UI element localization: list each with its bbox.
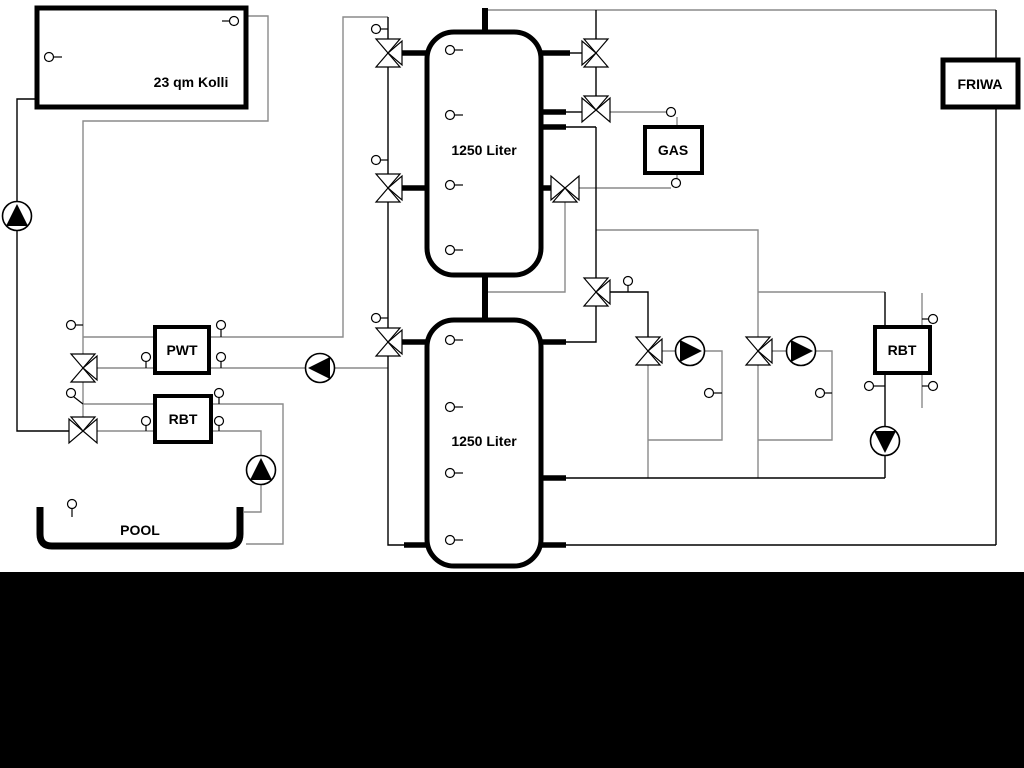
friwa-label: FRIWA	[957, 76, 1002, 92]
tank-top-label: 1250 Liter	[451, 142, 517, 158]
pwt-charge-pump-icon	[306, 354, 335, 383]
letterbox-bottom	[0, 572, 1024, 768]
hydraulic-schematic: 23 qm Kolli 1250 Liter 1250 Liter GAS FR…	[0, 0, 1024, 768]
heating-circuit-pump-1-icon	[676, 337, 705, 366]
heating-circuit-pump-2-icon	[787, 337, 816, 366]
screenshot-stage: 23 qm Kolli 1250 Liter 1250 Liter GAS FR…	[0, 0, 1024, 768]
solar-collector-box	[37, 8, 246, 107]
sensor-gas-return-icon	[672, 179, 681, 188]
rbt-right-label: RBT	[888, 342, 917, 358]
rbt-left-label: RBT	[169, 411, 198, 427]
pwt-label: PWT	[166, 342, 198, 358]
solar-pump-icon	[3, 202, 32, 231]
collector-label: 23 qm Kolli	[154, 74, 229, 90]
tank-bottom-label: 1250 Liter	[451, 433, 517, 449]
rbt-right-pump-icon	[871, 427, 900, 456]
gas-label: GAS	[658, 142, 688, 158]
pool-pump-icon	[247, 456, 276, 485]
pool-label: POOL	[120, 522, 160, 538]
sensor-gas-flow-icon	[667, 108, 676, 117]
